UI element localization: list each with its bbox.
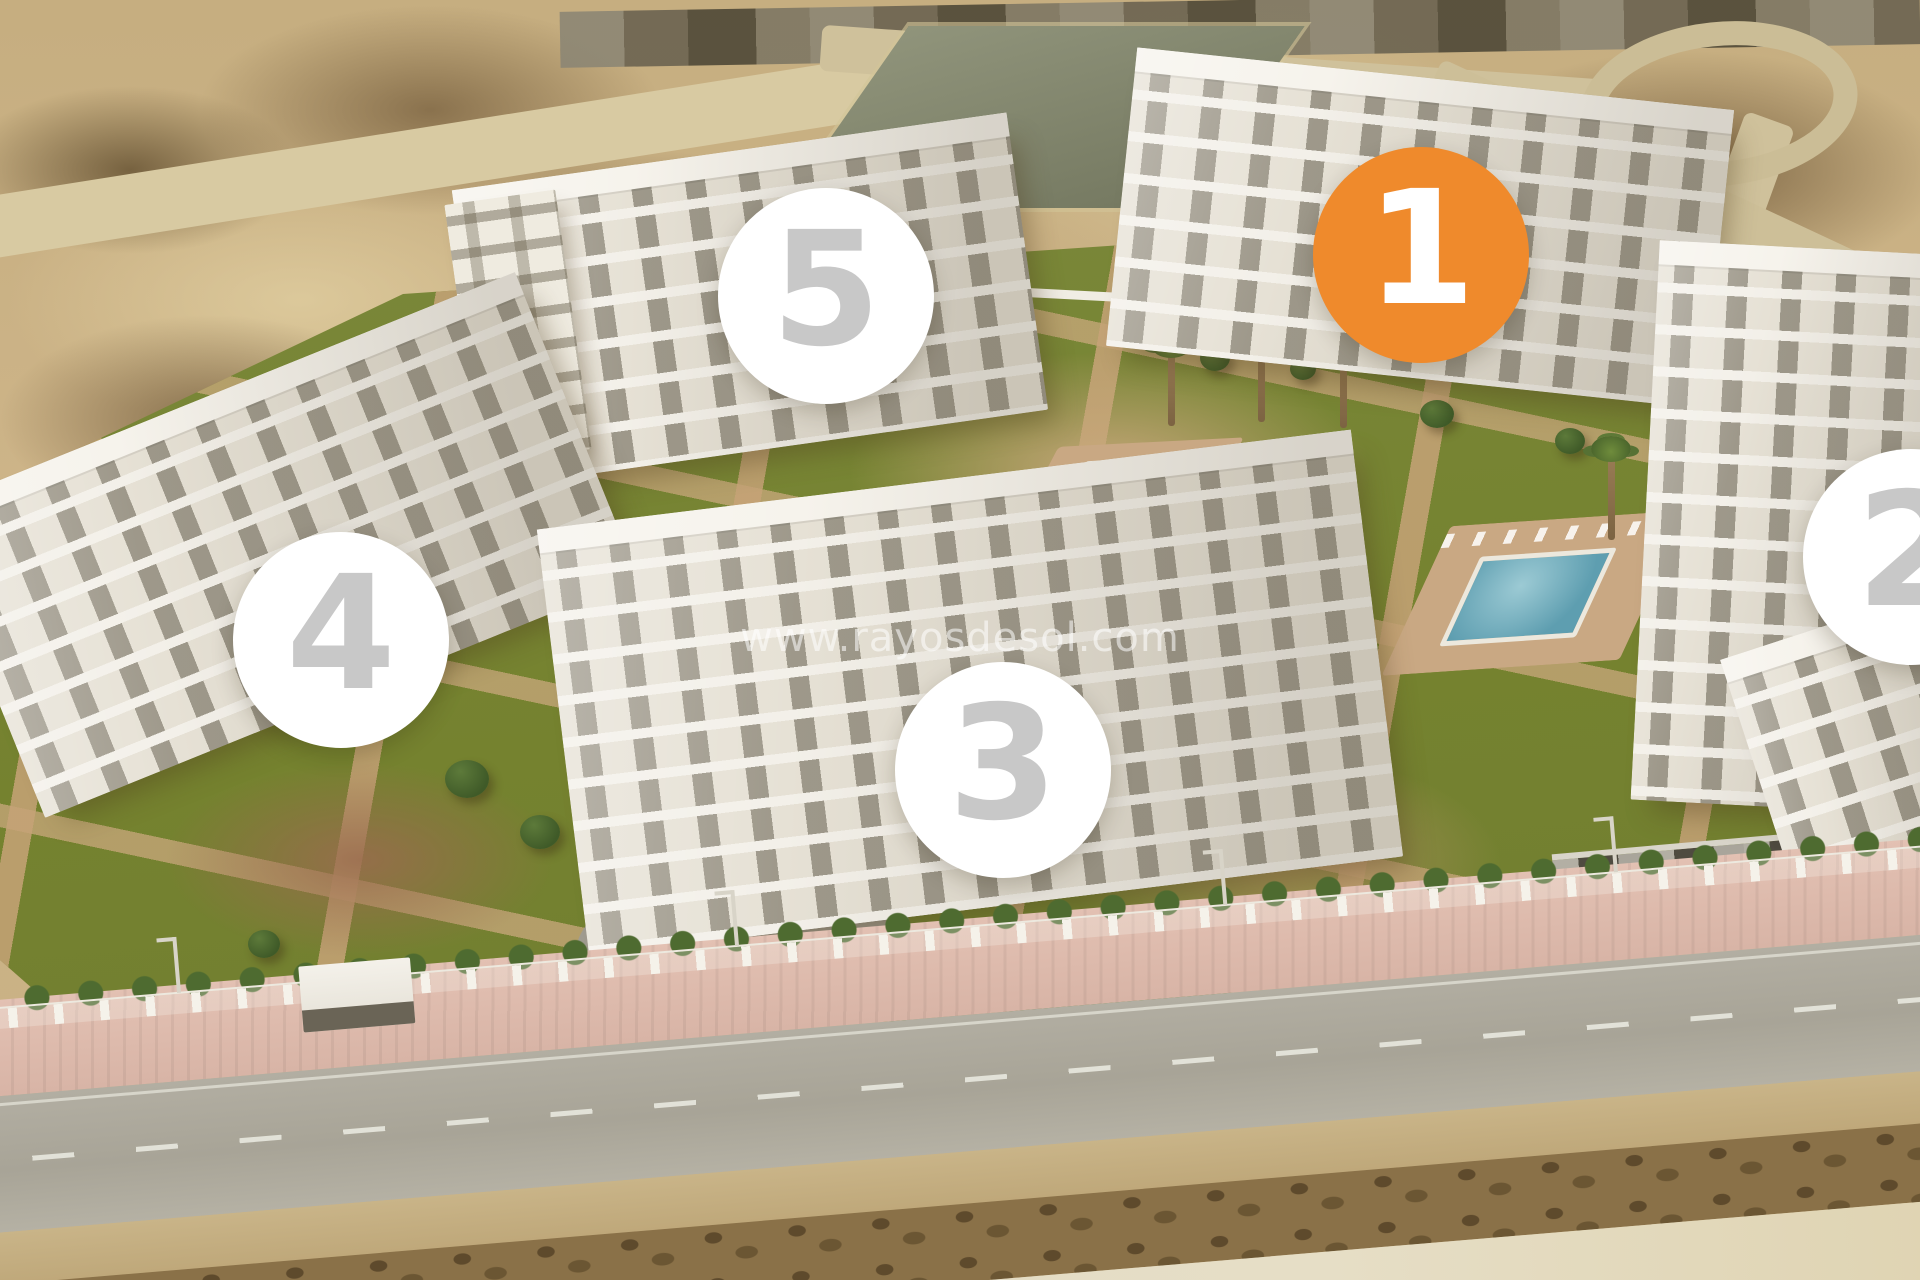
watermark-text: www.rayosdesol.com [740,615,1180,661]
entrance-gate [298,957,415,1032]
block-marker-1-number: 1 [1366,170,1476,328]
block-marker-4-number: 4 [286,555,396,713]
block-marker-3: 3 [895,662,1111,878]
block-marker-2-number: 2 [1856,472,1920,630]
block-marker-5: 5 [718,188,934,404]
aerial-render: 1 2 3 4 5 www.rayosdesol.com [0,0,1920,1280]
block-marker-4: 4 [233,532,449,748]
block-marker-1: 1 [1313,147,1529,363]
block-marker-3-number: 3 [948,685,1058,843]
block-marker-5-number: 5 [771,211,881,369]
